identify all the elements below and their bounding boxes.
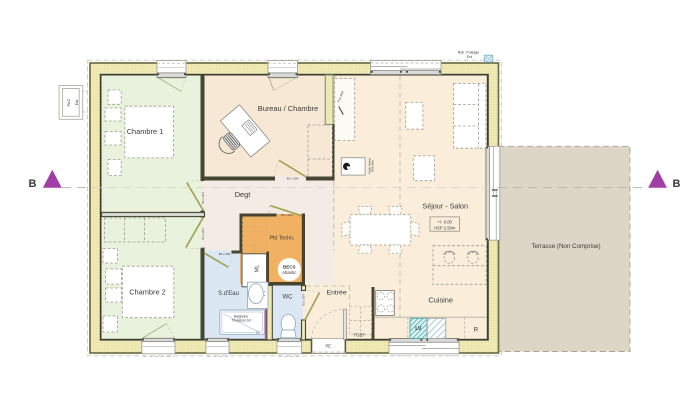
svg-text:B: B: [29, 178, 37, 190]
svg-text:Chambre 1: Chambre 1: [127, 127, 164, 136]
svg-text:LV: LV: [415, 326, 422, 332]
svg-text:TGBT: TGBT: [353, 333, 365, 338]
svg-text:Séjour - Salon: Séjour - Salon: [422, 202, 468, 211]
svg-text:Pld Techn.: Pld Techn.: [269, 235, 294, 241]
svg-text:83 x 204: 83 x 204: [281, 213, 293, 217]
svg-text:S.d'Eau: S.d'Eau: [218, 291, 239, 297]
svg-text:Bureau / Chambre: Bureau / Chambre: [258, 104, 318, 113]
svg-text:Degt: Degt: [235, 190, 251, 199]
svg-text:Cuisine: Cuisine: [428, 296, 453, 305]
svg-text:R: R: [474, 327, 479, 334]
svg-text:Entrée: Entrée: [327, 290, 347, 297]
svg-text:PAC: PAC: [66, 98, 71, 106]
svg-text:+/- 0.00: +/- 0.00: [438, 220, 453, 225]
svg-text:B: B: [673, 178, 681, 190]
svg-text:83 x 204: 83 x 204: [287, 177, 299, 181]
svg-text:Terrasse (Non Comprise): Terrasse (Non Comprise): [531, 243, 600, 250]
svg-text:WC: WC: [283, 295, 294, 301]
svg-text:Rob. Puisage: Rob. Puisage: [458, 50, 480, 54]
svg-text:BECS: BECS: [283, 264, 296, 269]
svg-text:Ext: Ext: [467, 55, 472, 59]
svg-text:83 x 204: 83 x 204: [201, 192, 205, 204]
svg-text:PE: PE: [326, 344, 332, 349]
svg-text:83 x 204: 83 x 204: [301, 294, 305, 306]
svg-text:HSP 2.50m: HSP 2.50m: [434, 225, 456, 230]
svg-text:83 x 204: 83 x 204: [219, 252, 231, 256]
svg-text:Atlantic: Atlantic: [282, 270, 297, 275]
svg-text:Ext: Ext: [74, 99, 79, 106]
svg-text:RED Man: RED Man: [371, 159, 375, 172]
svg-text:Thalassor bd: Thalassor bd: [231, 319, 251, 323]
svg-text:ML: ML: [254, 265, 260, 273]
svg-text:83 x 204: 83 x 204: [201, 228, 205, 240]
svg-text:Chambre 2: Chambre 2: [129, 288, 166, 297]
